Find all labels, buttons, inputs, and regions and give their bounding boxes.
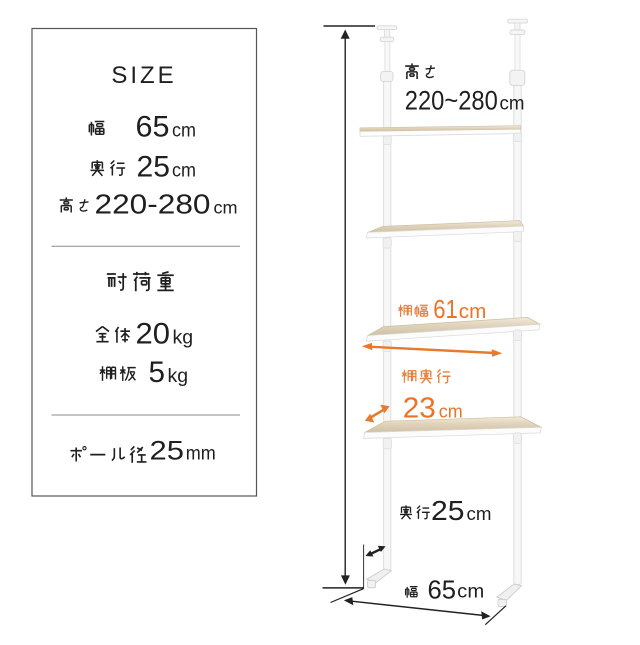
svg-text:25: 25	[137, 150, 171, 183]
svg-text:25: 25	[150, 436, 185, 466]
svg-text:5: 5	[149, 356, 166, 389]
svg-text:kg: kg	[168, 365, 189, 387]
svg-text:cm: cm	[467, 503, 492, 524]
svg-text:65: 65	[136, 111, 170, 144]
svg-text:20: 20	[136, 318, 171, 351]
svg-text:kg: kg	[173, 327, 194, 349]
svg-text:cm: cm	[439, 401, 463, 422]
svg-text:220~280: 220~280	[405, 85, 498, 115]
svg-text:23: 23	[403, 393, 436, 425]
svg-text:220-280: 220-280	[95, 189, 211, 220]
svg-text:mm: mm	[186, 444, 216, 465]
svg-text:65: 65	[428, 574, 457, 604]
svg-text:cm: cm	[457, 582, 484, 603]
svg-text:25: 25	[431, 495, 465, 526]
svg-text:cm: cm	[172, 120, 196, 142]
svg-text:cm: cm	[172, 159, 196, 181]
svg-text:cm: cm	[459, 301, 487, 323]
svg-text:cm: cm	[214, 198, 238, 218]
svg-text:SIZE: SIZE	[111, 62, 176, 89]
svg-text:61: 61	[433, 294, 458, 324]
svg-text:cm: cm	[500, 93, 525, 114]
